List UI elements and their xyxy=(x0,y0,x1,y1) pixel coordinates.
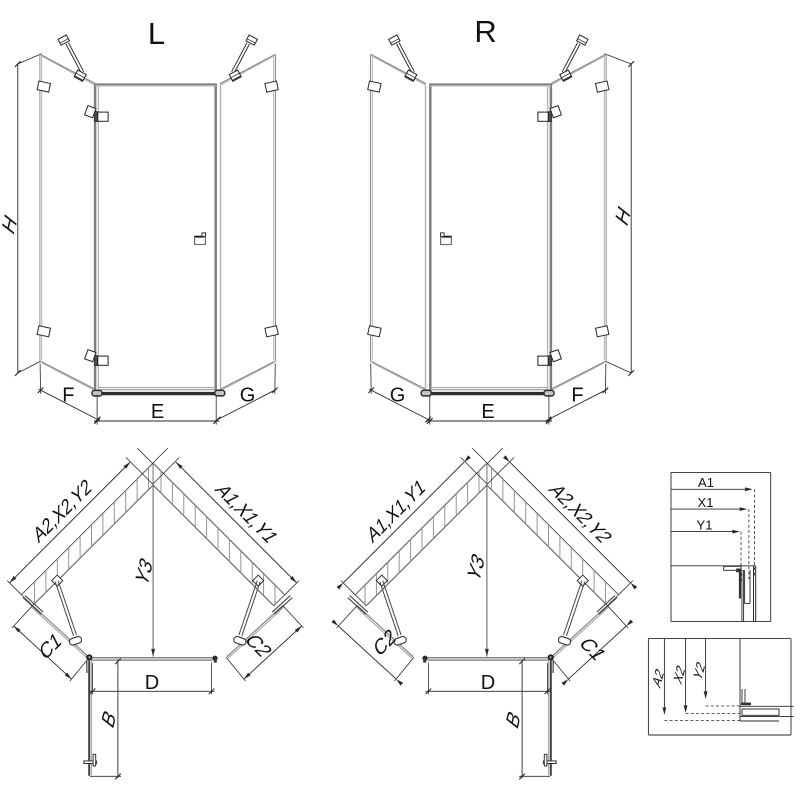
svg-text:G: G xyxy=(390,385,406,407)
svg-text:L: L xyxy=(148,16,165,51)
svg-text:D: D xyxy=(481,672,495,694)
svg-text:D: D xyxy=(145,672,159,694)
svg-text:R: R xyxy=(474,14,496,49)
svg-text:F: F xyxy=(571,385,583,407)
svg-text:G: G xyxy=(240,385,256,407)
svg-text:E: E xyxy=(481,401,494,423)
svg-text:X1: X1 xyxy=(698,495,714,510)
svg-text:A1: A1 xyxy=(698,475,714,490)
svg-text:Y1: Y1 xyxy=(697,517,713,532)
svg-text:F: F xyxy=(62,385,74,407)
svg-text:E: E xyxy=(151,401,164,423)
